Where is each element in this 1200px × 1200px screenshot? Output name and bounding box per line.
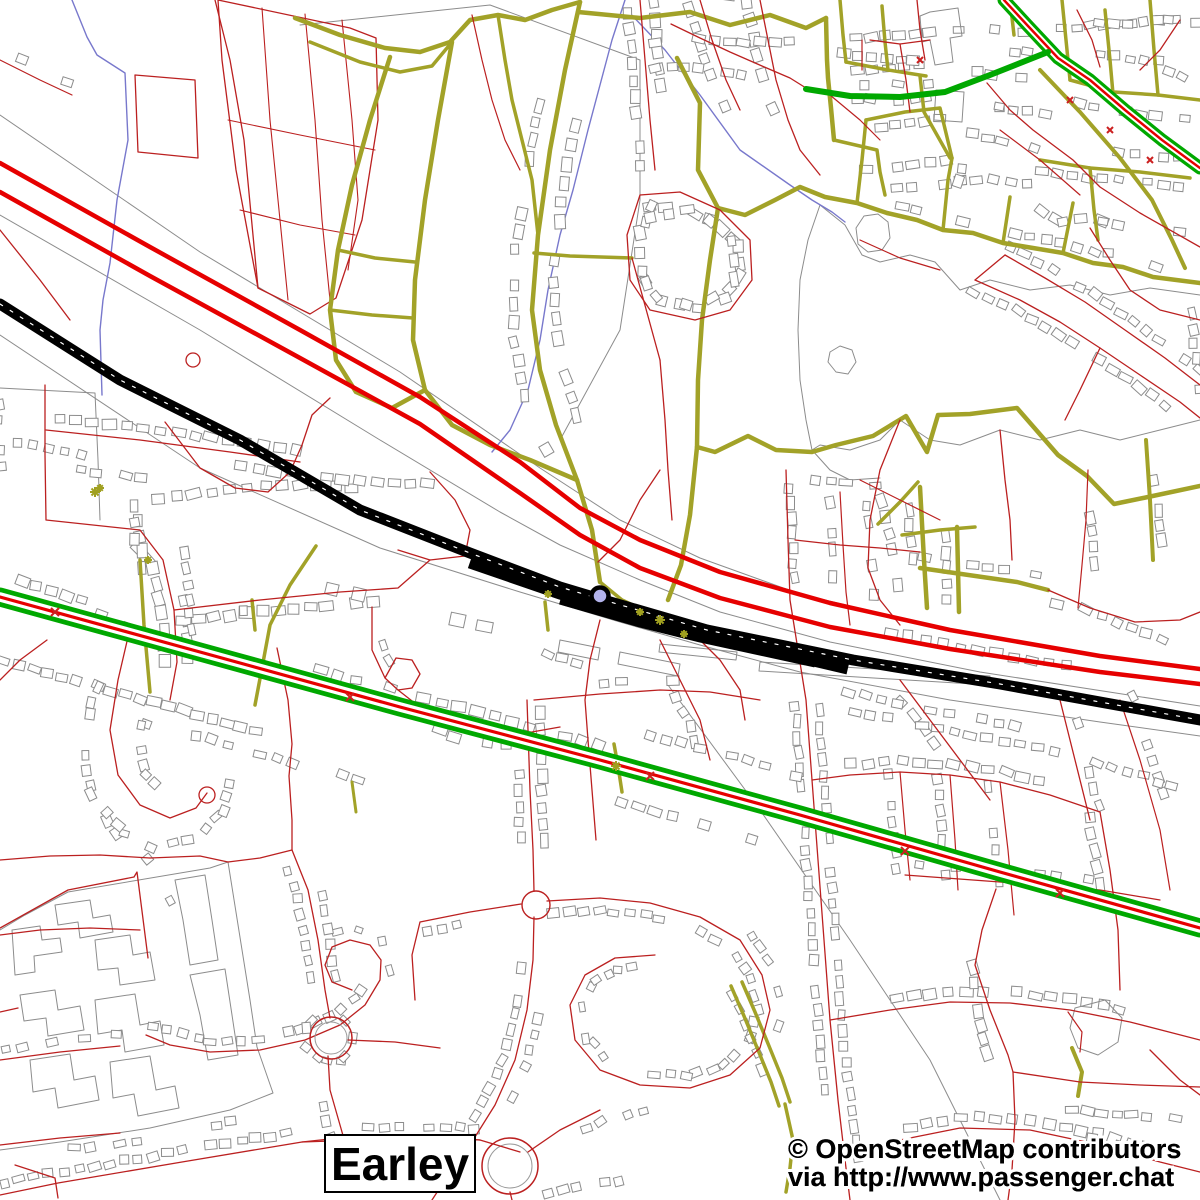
svg-text:Earley: Earley bbox=[331, 1138, 470, 1190]
svg-text:© OpenStreetMap contributors: © OpenStreetMap contributors bbox=[788, 1134, 1181, 1164]
svg-text:via http://www.passenger.chat: via http://www.passenger.chat bbox=[788, 1162, 1174, 1192]
